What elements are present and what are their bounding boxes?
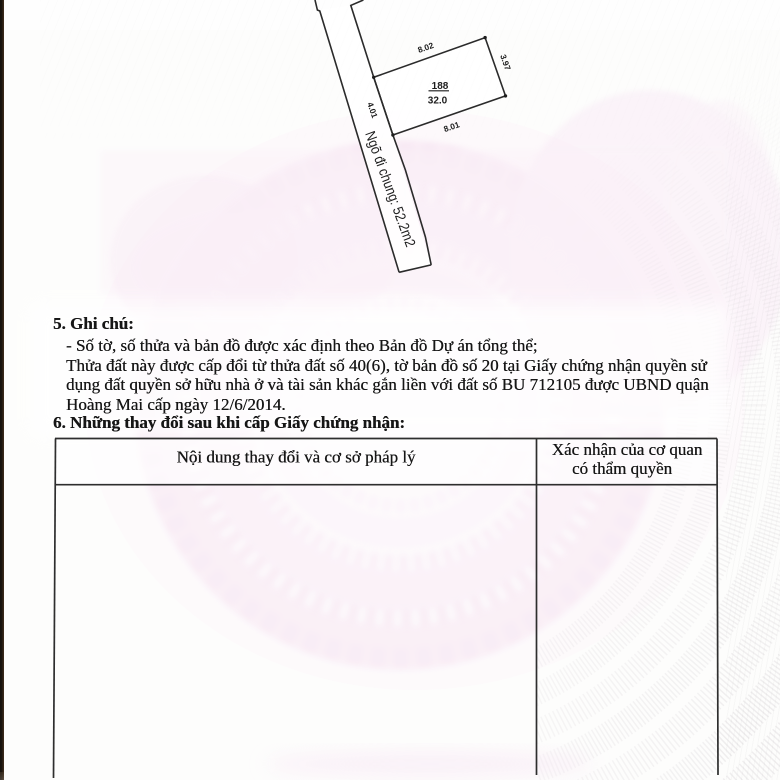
svg-text:Nội dung thay đổi và cơ sở phá: Nội dung thay đổi và cơ sở pháp lý [177, 448, 416, 467]
svg-text:Xác nhận của cơ quan: Xác nhận của cơ quan [552, 440, 703, 459]
svg-text:có thẩm quyền: có thẩm quyền [572, 459, 673, 478]
